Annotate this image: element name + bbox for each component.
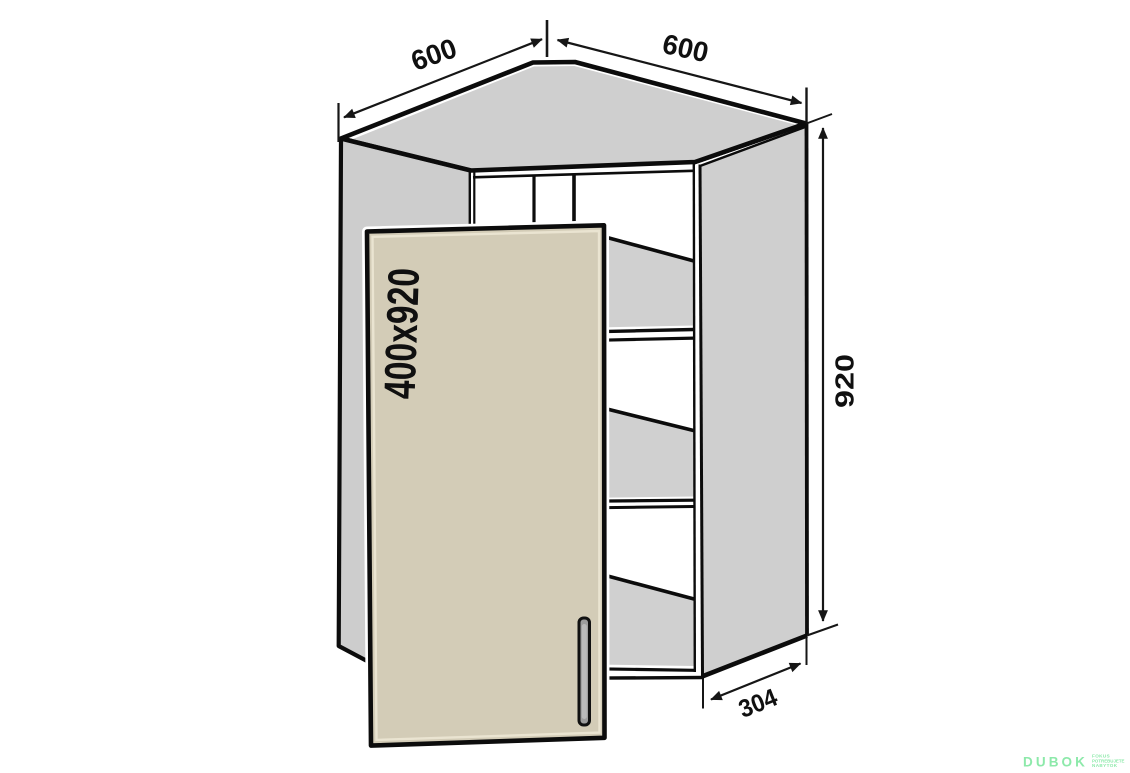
svg-text:304: 304 xyxy=(735,683,782,723)
svg-text:DUBOK: DUBOK xyxy=(1023,755,1088,770)
svg-text:NABYTOK: NABYTOK xyxy=(1092,763,1118,768)
svg-text:920: 920 xyxy=(830,354,860,408)
svg-text:600: 600 xyxy=(407,32,461,77)
svg-text:600: 600 xyxy=(660,28,712,68)
svg-text:400x920: 400x920 xyxy=(376,267,430,400)
